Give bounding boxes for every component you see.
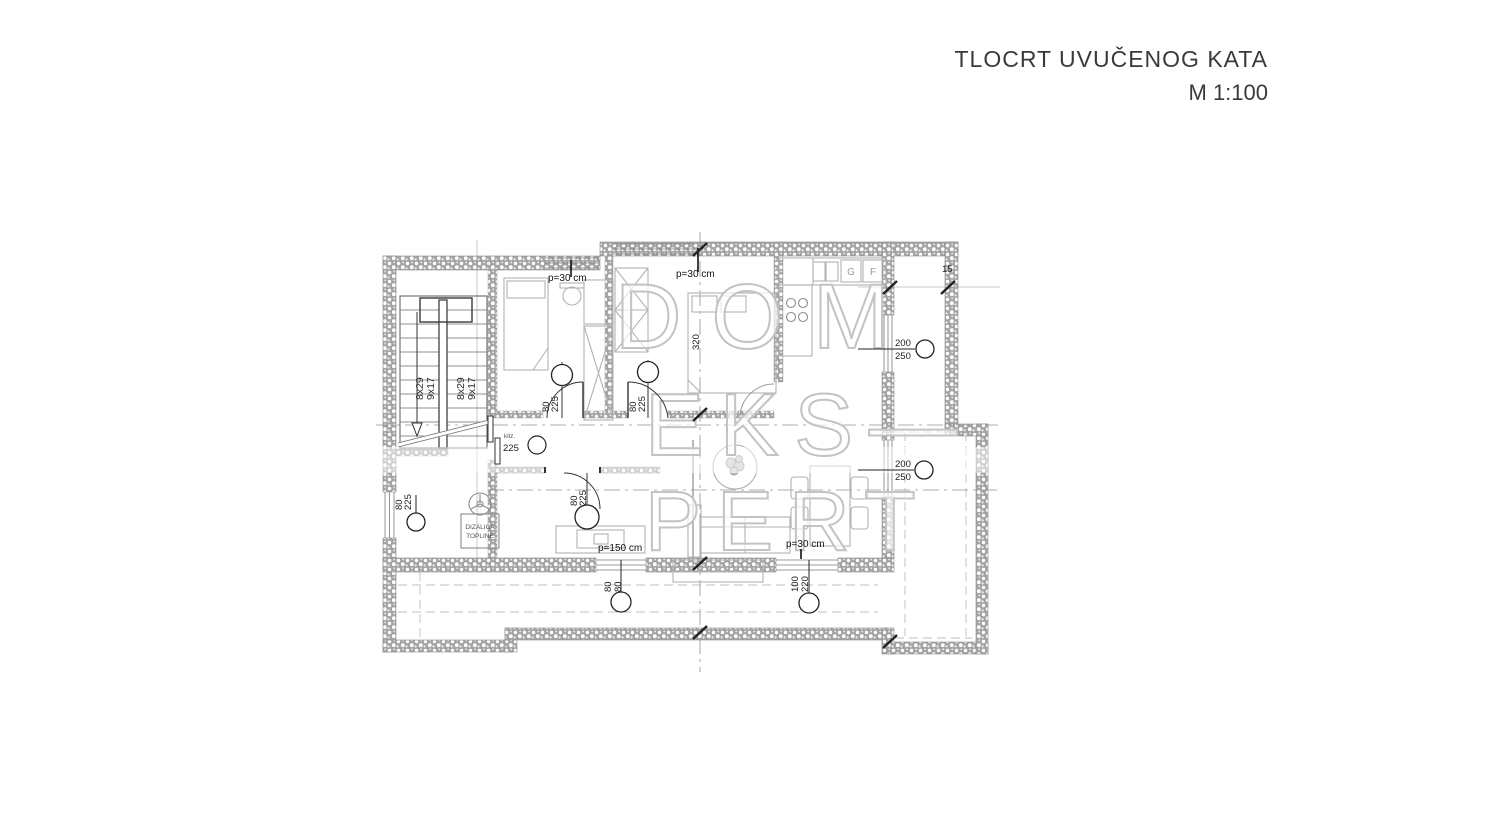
stair-label: 9x17 bbox=[466, 377, 478, 400]
dim-15: 15 bbox=[942, 264, 953, 275]
parapet-label: p=30 cm bbox=[786, 539, 825, 550]
floor-plan: 8x29 9x17 8x29 9x17 bbox=[0, 0, 1510, 818]
stair-label: 9x17 bbox=[425, 377, 437, 400]
door-hall: 80 225 bbox=[545, 467, 600, 529]
watermark: DOM EKS— PERT bbox=[376, 266, 988, 568]
window-size: 80 bbox=[613, 581, 624, 592]
heat-pump-fan bbox=[469, 493, 491, 515]
corner-sink bbox=[560, 283, 584, 305]
parapet-label: p=30 cm bbox=[676, 269, 715, 280]
window-size: 200 bbox=[895, 459, 911, 470]
door-slide-type: kliz. bbox=[504, 433, 515, 440]
window-terrace-small: 80 80 bbox=[603, 560, 631, 612]
window-size: 225 bbox=[403, 494, 414, 510]
appliance-letter-g: G bbox=[847, 267, 855, 278]
door-size: 220 bbox=[800, 576, 811, 592]
bed-single bbox=[504, 278, 548, 370]
watermark-line2: EKS— bbox=[645, 375, 973, 474]
door-size: 225 bbox=[550, 396, 561, 412]
watermark-line3: PERT bbox=[645, 474, 932, 568]
window-size: 250 bbox=[895, 472, 911, 483]
appliance-letter-f: F bbox=[870, 267, 876, 278]
door-size: 225 bbox=[578, 490, 589, 506]
parapet-label: p=150 cm bbox=[598, 543, 642, 554]
parapet-label: p=30 cm bbox=[548, 273, 587, 284]
watermark-line1: DOM bbox=[615, 266, 920, 368]
heat-pump-text: DIZALICA bbox=[465, 524, 495, 531]
dim-320: 320 bbox=[691, 334, 702, 350]
door-slide-size: 225 bbox=[503, 443, 519, 454]
heat-pump-text: TOPLINE bbox=[466, 533, 494, 540]
window-size: 250 bbox=[895, 351, 911, 362]
window-size: 200 bbox=[895, 338, 911, 349]
door-size: 225 bbox=[637, 396, 648, 412]
window-left: 80 225 bbox=[394, 494, 425, 531]
